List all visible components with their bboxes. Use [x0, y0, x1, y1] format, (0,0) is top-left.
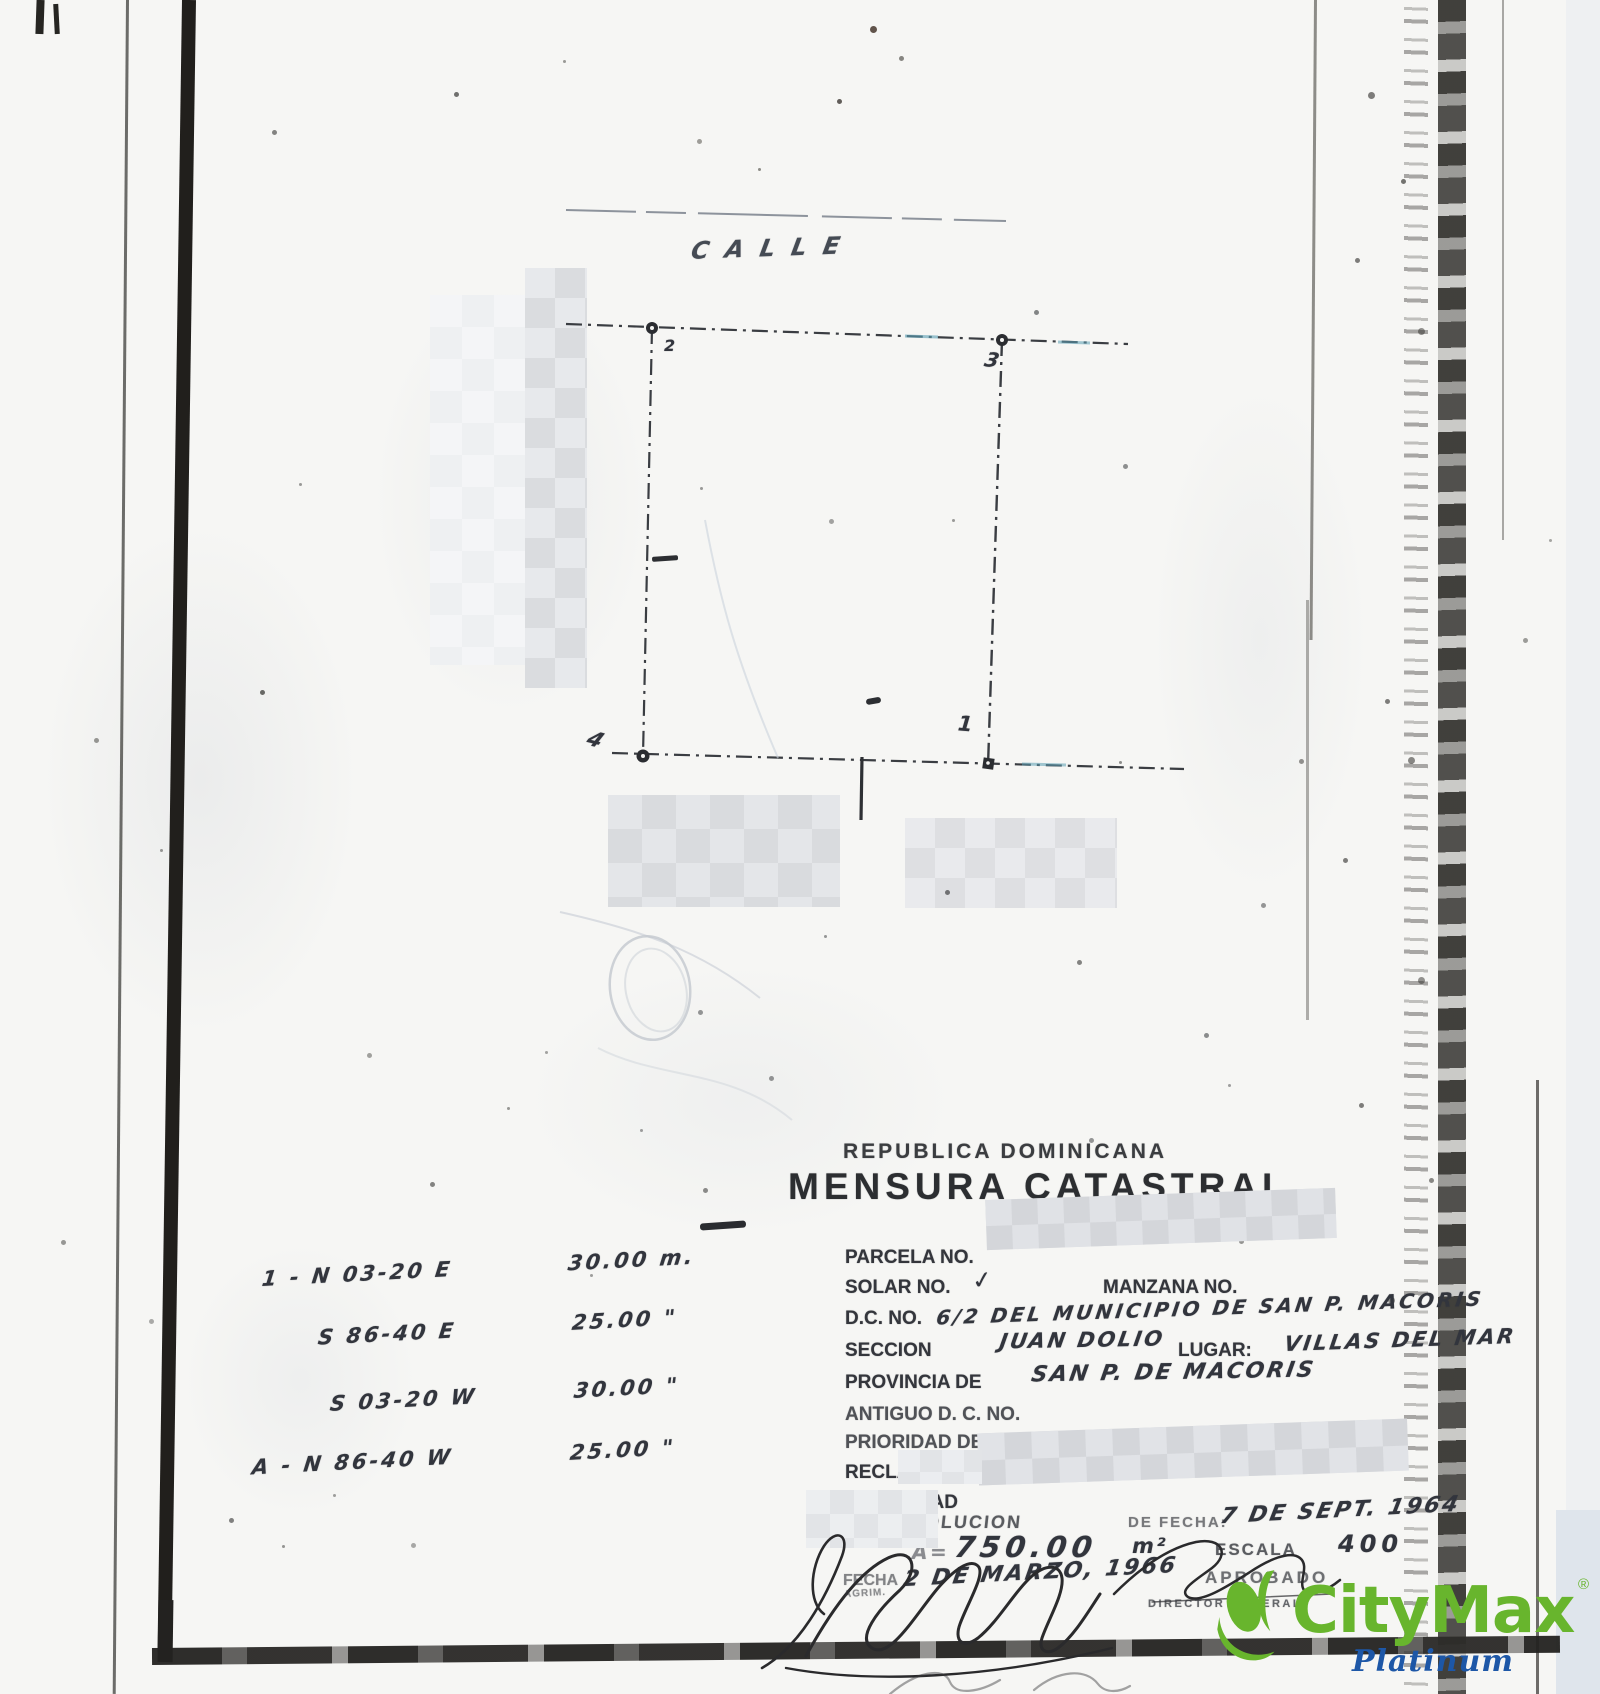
left-signature-caption: AGRIM. — [844, 1587, 887, 1600]
citymax-leaf-icon — [1214, 1566, 1292, 1668]
citymax-registered-mark: ® — [1578, 1576, 1589, 1593]
scanned-survey-document: CALLE 2 3 1 4 REPUBLICA DOMINICANA MENSU… — [0, 0, 1600, 1694]
citymax-brand: CityMax — [1292, 1574, 1574, 1648]
signatures — [0, 0, 1600, 1694]
citymax-tier: Platinum — [1352, 1644, 1514, 1679]
